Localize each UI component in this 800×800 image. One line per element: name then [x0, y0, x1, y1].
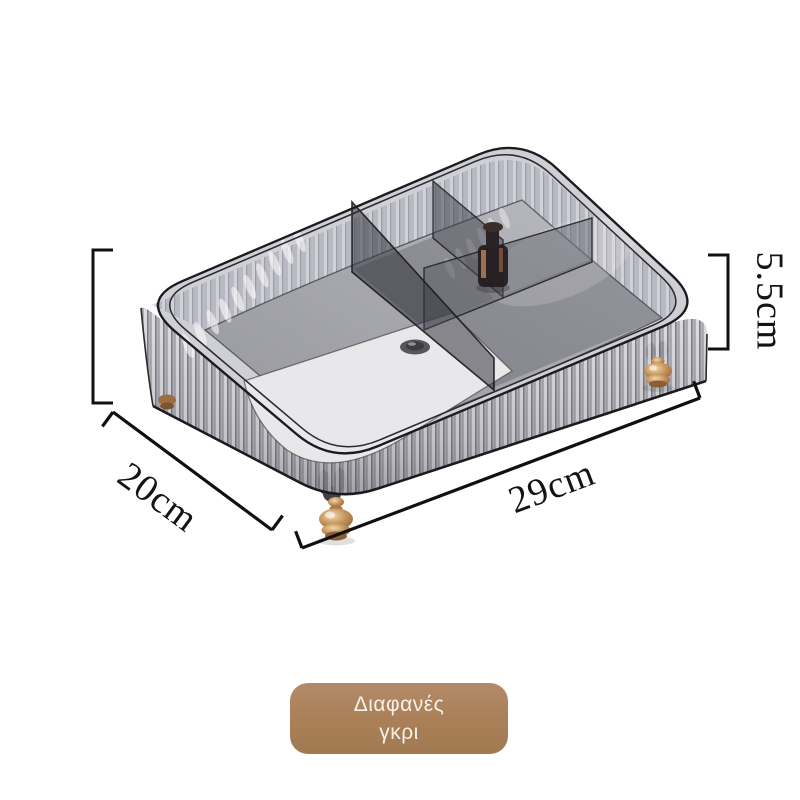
height-bracket-left [93, 250, 113, 403]
variant-chip-label-line2: γκρι [379, 719, 419, 747]
depth-label: 20cm [110, 454, 206, 540]
gold-foot-front [317, 497, 355, 546]
variant-chip-label-line1: Διαφανές [354, 691, 445, 719]
storage-box [141, 148, 707, 546]
width-label: 29cm [503, 452, 601, 522]
drain-hole [400, 340, 430, 355]
variant-chip[interactable]: Διαφανές γκρι [290, 683, 508, 754]
height-bracket-right [708, 255, 728, 349]
height-label: 5.5cm [748, 252, 790, 351]
gold-foot-left [158, 395, 176, 410]
product-detail-image: 5.5cm 20cm 29cm Διαφανές γκρι [0, 0, 800, 800]
product-illustration: 5.5cm 20cm 29cm [0, 0, 800, 800]
